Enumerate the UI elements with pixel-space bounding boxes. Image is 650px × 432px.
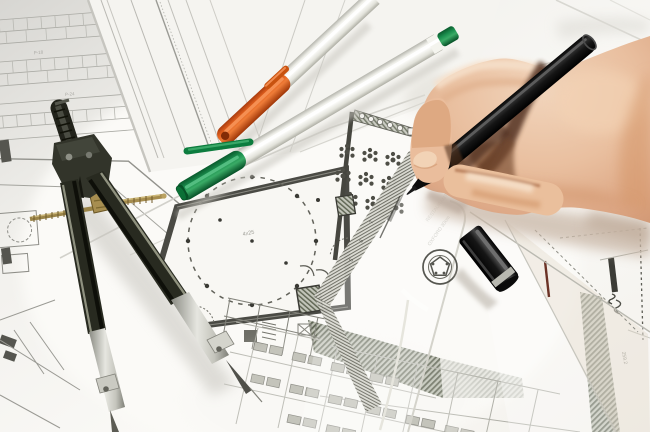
svg-text:P-18: P-18 (33, 50, 43, 56)
svg-text:P-24: P-24 (65, 91, 75, 97)
